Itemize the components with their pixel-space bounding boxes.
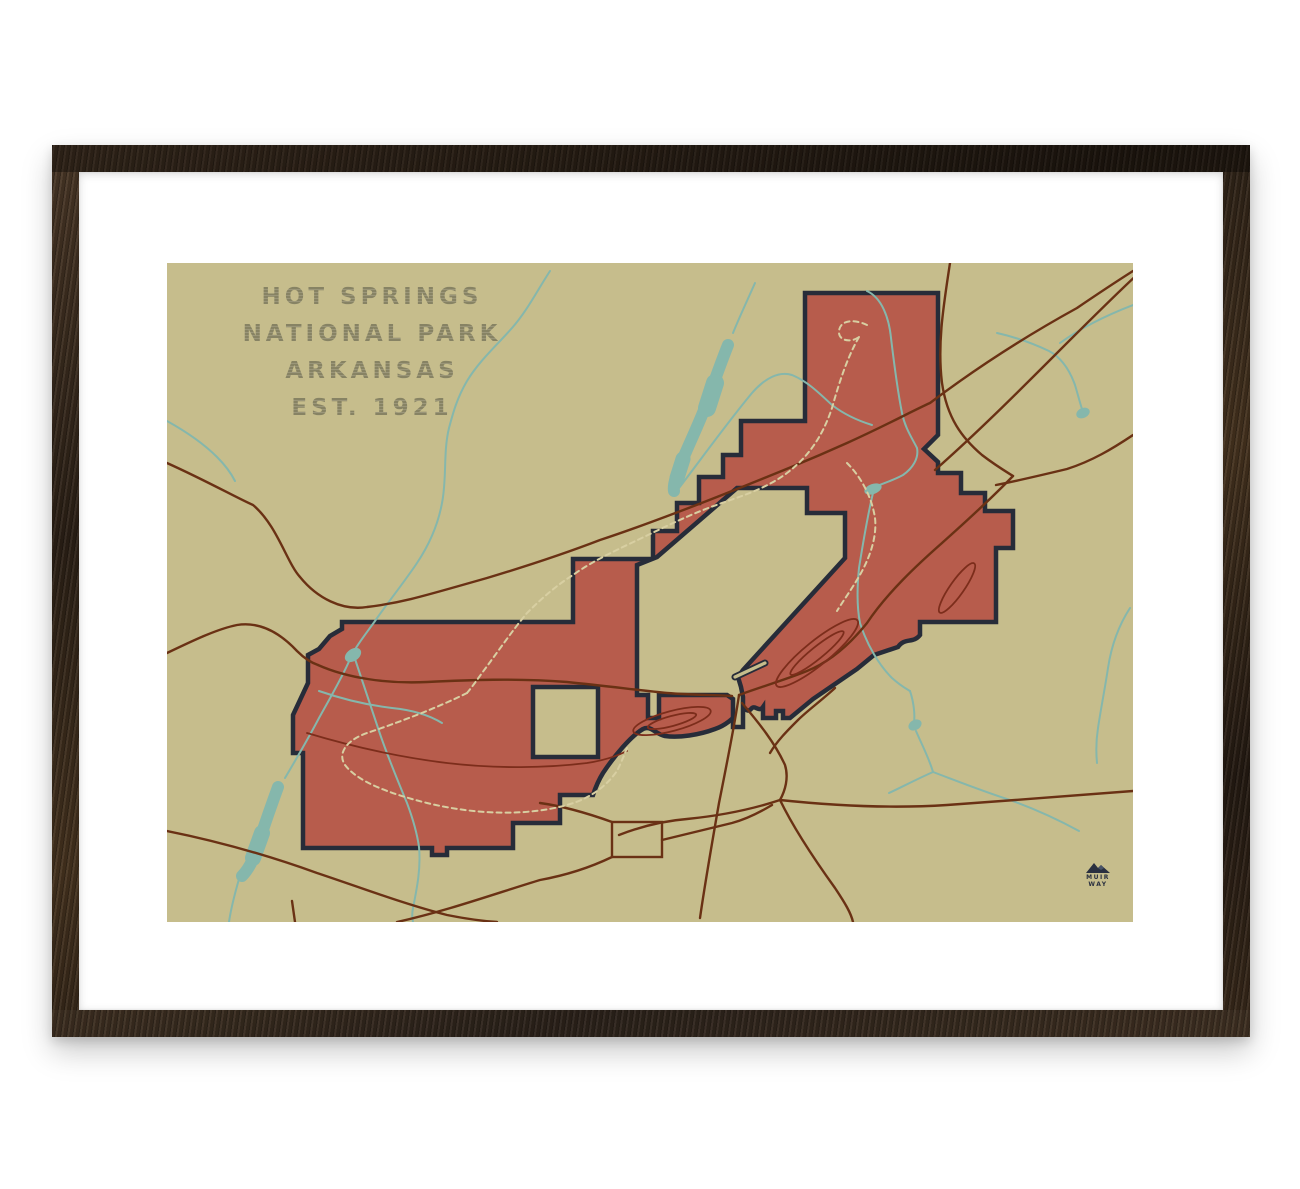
park-notch-cutout [533, 687, 598, 757]
map-title-line2: NATIONAL PARK [222, 316, 522, 353]
map-title-line4: EST. 1921 [222, 390, 522, 427]
picture-frame: HOT SPRINGS NATIONAL PARK ARKANSAS EST. … [52, 145, 1250, 1037]
framed-map-photo: HOT SPRINGS NATIONAL PARK ARKANSAS EST. … [0, 0, 1300, 1189]
map-print: HOT SPRINGS NATIONAL PARK ARKANSAS EST. … [167, 263, 1133, 922]
brand-name-line2: WAY [1072, 881, 1124, 888]
map-title-block: HOT SPRINGS NATIONAL PARK ARKANSAS EST. … [222, 279, 522, 427]
brand-name-line1: MUIR [1072, 874, 1124, 881]
brand-logo: MUIR WAY [1072, 861, 1124, 888]
mountain-icon [1085, 861, 1111, 874]
map-title-line3: ARKANSAS [222, 353, 522, 390]
mat-board: HOT SPRINGS NATIONAL PARK ARKANSAS EST. … [79, 172, 1223, 1010]
map-title-line1: HOT SPRINGS [222, 279, 522, 316]
